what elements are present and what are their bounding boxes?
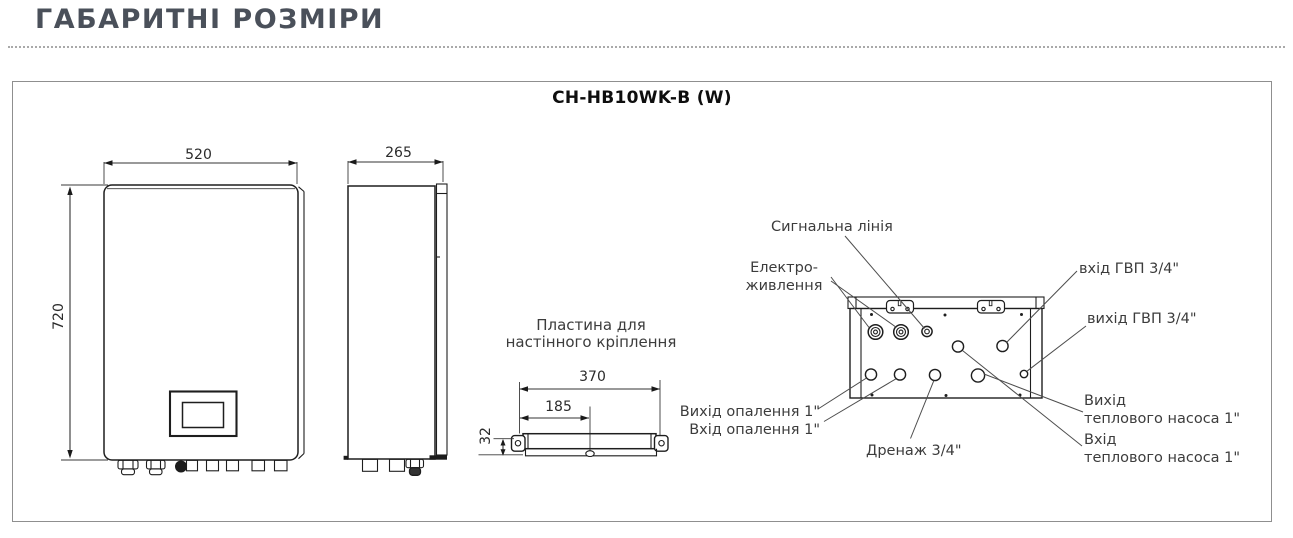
dim-plate-width: 370 (576, 369, 609, 385)
callout-signal-line: Сигнальна лінія (771, 219, 893, 237)
callout-hp-outlet-line2: теплового насоса 1" (1084, 410, 1240, 428)
port-heating-inlet (894, 369, 905, 380)
port-dhw-outlet (1020, 370, 1027, 377)
bottom-view-drawing (848, 297, 1044, 398)
dim-plate-offset: 32 (478, 423, 492, 449)
front-display (170, 392, 237, 437)
front-display-screen (183, 403, 224, 428)
callout-hp-outlet: Вихід теплового насоса 1" (1084, 392, 1240, 428)
callout-drain: Дренаж 3/4" (866, 443, 962, 461)
mount-bracket (978, 301, 1005, 314)
plate-bar (523, 434, 656, 449)
plate-caption-line2: настінного кріплення (504, 334, 678, 351)
plate-center-slot (586, 451, 594, 457)
dim-plate-half: 185 (542, 399, 575, 415)
page: ГАБАРИТНІ РОЗМІРИ CH-HB10WK-B (W) (0, 0, 1293, 538)
dim-front-height: 720 (51, 300, 66, 333)
callout-power-line2: живлення (741, 277, 827, 295)
mount-hole (659, 441, 664, 446)
dim-side-depth: 265 (382, 145, 415, 161)
callout-hp-inlet-line1: Вхід (1084, 431, 1240, 449)
side-mount-strip (437, 184, 448, 455)
port-hp-outlet (971, 369, 984, 382)
callout-power-supply: Електро- живлення (741, 259, 827, 295)
callout-hp-outlet-line1: Вихід (1084, 392, 1240, 410)
port-heating-outlet (865, 369, 876, 380)
port-hp-inlet (952, 341, 963, 352)
mounting-plate-drawing (479, 380, 669, 457)
callout-power-line1: Електро- (741, 259, 827, 277)
callout-dhw-inlet: вхід ГВП 3/4" (1079, 261, 1179, 279)
front-view-drawing (61, 160, 304, 474)
plate-caption: Пластина для настінного кріплення (504, 317, 678, 351)
side-body (348, 186, 435, 459)
cable-gland (406, 459, 424, 475)
callout-hp-inlet: Вхід теплового насоса 1" (1084, 431, 1240, 467)
cable-gland (118, 460, 138, 474)
rail (848, 297, 1044, 309)
port-drain (929, 369, 940, 380)
cable-gland-dark (175, 461, 187, 473)
cable-gland (147, 460, 166, 474)
callout-heating-inlet: Вхід опалення 1" (650, 422, 820, 440)
callout-heating-outlet: Вихід опалення 1" (650, 404, 820, 422)
dim-front-width: 520 (182, 147, 215, 163)
side-view-drawing (344, 159, 447, 475)
front-body (104, 185, 298, 460)
callout-dhw-outlet: вихід ГВП 3/4" (1087, 311, 1197, 329)
bottom-body (850, 309, 1042, 399)
plate-caption-line1: Пластина для (504, 317, 678, 334)
callout-hp-inlet-line2: теплового насоса 1" (1084, 449, 1240, 467)
mount-hole (515, 441, 520, 446)
